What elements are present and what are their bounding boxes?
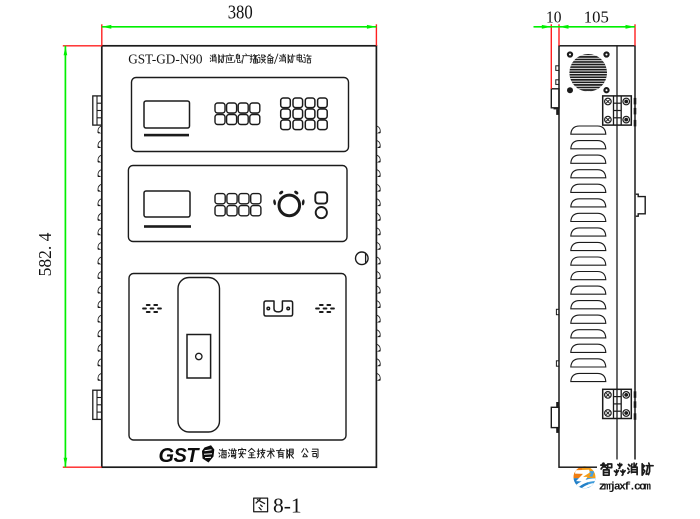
svg-text:GST-GD-N90: GST-GD-N90 bbox=[128, 51, 203, 66]
svg-text:10: 10 bbox=[546, 8, 562, 27]
svg-text:380: 380 bbox=[228, 2, 253, 24]
svg-text:GST: GST bbox=[159, 445, 201, 467]
svg-text:105: 105 bbox=[584, 8, 609, 27]
svg-text:zmjaxf.com: zmjaxf.com bbox=[599, 481, 651, 493]
svg-text:582. 4: 582. 4 bbox=[35, 232, 55, 276]
svg-text:8-1: 8-1 bbox=[273, 493, 302, 517]
